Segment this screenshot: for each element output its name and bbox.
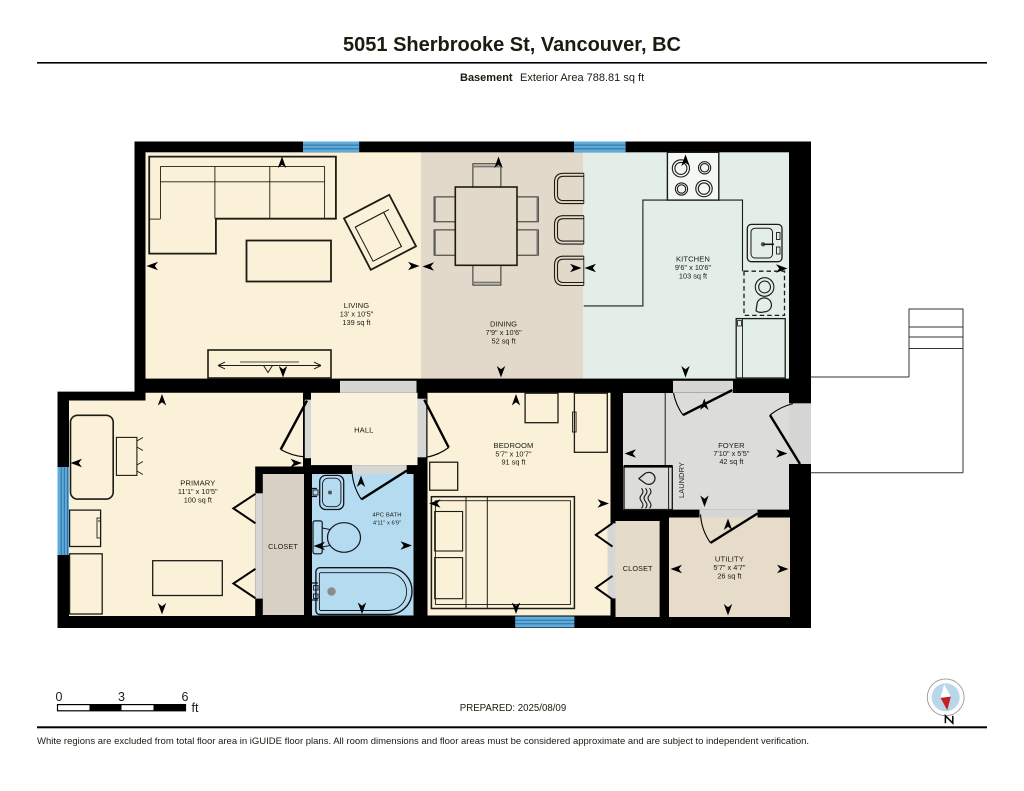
svg-text:139 sq ft: 139 sq ft [342, 318, 370, 327]
svg-text:LAUNDRY: LAUNDRY [677, 462, 686, 498]
svg-text:91 sq ft: 91 sq ft [501, 458, 525, 467]
svg-text:White regions are excluded fro: White regions are excluded from total fl… [37, 736, 809, 747]
svg-text:103 sq ft: 103 sq ft [679, 272, 707, 281]
svg-text:4'11" x 6'9": 4'11" x 6'9" [373, 521, 401, 527]
svg-text:ft: ft [192, 701, 199, 715]
svg-text:CLOSET: CLOSET [623, 564, 653, 573]
svg-text:PREPARED: 2025/08/09: PREPARED: 2025/08/09 [460, 703, 566, 714]
svg-text:4PC BATH: 4PC BATH [372, 513, 401, 519]
svg-text:HALL: HALL [354, 426, 373, 435]
svg-text:52 sq ft: 52 sq ft [492, 336, 516, 345]
svg-text:6: 6 [182, 690, 189, 704]
svg-text:100 sq ft: 100 sq ft [184, 495, 212, 504]
svg-text:26 sq ft: 26 sq ft [717, 572, 741, 581]
svg-text:Exterior Area 788.81 sq ft: Exterior Area 788.81 sq ft [520, 72, 644, 84]
svg-text:5051 Sherbrooke St, Vancouver,: 5051 Sherbrooke St, Vancouver, BC [343, 34, 681, 56]
svg-text:3: 3 [118, 690, 125, 704]
svg-text:42 sq ft: 42 sq ft [719, 457, 743, 466]
svg-text:Basement: Basement [460, 72, 513, 84]
svg-text:CLOSET: CLOSET [268, 542, 298, 551]
svg-text:0: 0 [56, 690, 63, 704]
